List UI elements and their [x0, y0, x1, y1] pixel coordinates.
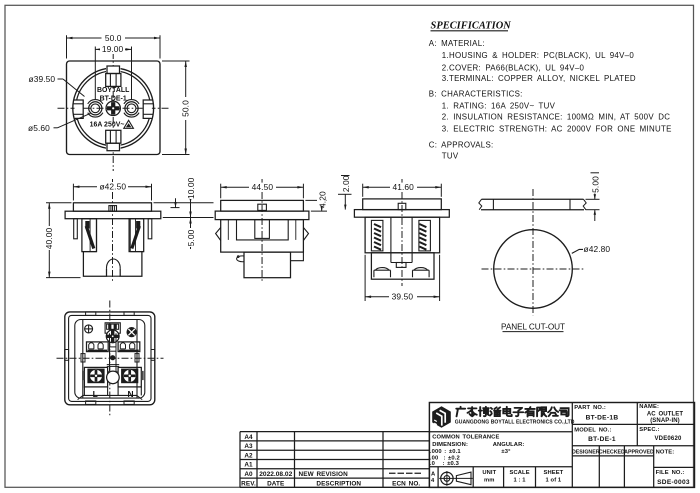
svg-text:ANGULAR:: ANGULAR: — [493, 442, 525, 448]
svg-text:A2: A2 — [244, 452, 253, 459]
svg-text:A0: A0 — [244, 471, 253, 478]
svg-text:DESIGNER: DESIGNER — [572, 450, 600, 456]
svg-text:TUV: TUV — [442, 152, 459, 161]
svg-text:CHECKED: CHECKED — [599, 450, 625, 456]
svg-text:DATE: DATE — [267, 480, 285, 487]
svg-text:N: N — [128, 389, 134, 399]
svg-text:A: MATERIAL:: A: MATERIAL: — [429, 39, 485, 48]
svg-text:NAME:: NAME: — [639, 404, 659, 410]
svg-text:BT-DE-1B: BT-DE-1B — [586, 414, 619, 421]
svg-text:PANEL CUT-OUT: PANEL CUT-OUT — [501, 323, 565, 332]
svg-text:4.20: 4.20 — [317, 191, 327, 208]
svg-text:VDE0620: VDE0620 — [654, 436, 682, 442]
svg-text:mm: mm — [484, 477, 495, 483]
svg-text:BOYTALL: BOYTALL — [97, 87, 129, 94]
svg-text:C: APPROVALS:: C: APPROVALS: — [429, 141, 494, 150]
svg-text:5.00: 5.00 — [186, 229, 196, 246]
svg-text:40.00: 40.00 — [44, 228, 54, 250]
svg-text:APPROVED: APPROVED — [624, 450, 654, 456]
svg-text:A1: A1 — [244, 462, 253, 469]
svg-text:16A 250V~: 16A 250V~ — [90, 121, 125, 128]
svg-text:2022.08.02: 2022.08.02 — [259, 471, 292, 478]
svg-text:REV.: REV. — [241, 480, 256, 487]
svg-text:GUANGDONG BOYTALL ELECTRONICS: GUANGDONG BOYTALL ELECTRONICS CO.,LTD — [455, 419, 575, 425]
svg-text:SPECIFICATION: SPECIFICATION — [431, 21, 512, 32]
svg-text:±3°: ±3° — [501, 449, 511, 455]
svg-text:BT-DE-1: BT-DE-1 — [100, 95, 127, 102]
svg-text:1 : 1: 1 : 1 — [514, 477, 527, 483]
svg-text:3.TERMINAL: COPPER ALLOY, N: 3.TERMINAL: COPPER ALLOY, NICKEL PLATED — [442, 74, 636, 83]
svg-text:50.0: 50.0 — [105, 33, 122, 43]
svg-text:2.00: 2.00 — [341, 175, 351, 192]
svg-text:AC OUTLET: AC OUTLET — [647, 412, 684, 418]
svg-text:SDE-0003: SDE-0003 — [657, 479, 690, 486]
svg-text:A3: A3 — [244, 443, 253, 450]
svg-text:A4: A4 — [244, 434, 253, 441]
svg-text:MODEL NO.:: MODEL NO.: — [574, 428, 611, 434]
svg-text:DESCRIPTION: DESCRIPTION — [316, 480, 361, 487]
svg-text:41.60: 41.60 — [392, 182, 414, 192]
svg-text:10.00: 10.00 — [186, 177, 196, 199]
svg-text:ECN NO.: ECN NO. — [392, 480, 420, 487]
svg-text:2. INSULATION RESISTANCE: 1: 2. INSULATION RESISTANCE: 100MΩ MIN, AT … — [442, 113, 670, 122]
svg-text:1 of 1: 1 of 1 — [546, 477, 562, 483]
svg-text:5.00: 5.00 — [591, 176, 601, 193]
svg-text:ø42.80: ø42.80 — [584, 244, 611, 254]
svg-text:1.HOUSING & HOLDER: PC(BLAC: 1.HOUSING & HOLDER: PC(BLACK), UL 94V–0 — [442, 51, 635, 60]
svg-text:.000 : ±0.1: .000 : ±0.1 — [430, 449, 461, 455]
svg-text:ø39.50: ø39.50 — [29, 74, 56, 84]
svg-text:SCALE: SCALE — [510, 470, 530, 476]
svg-text:.0 : ±0.3: .0 : ±0.3 — [430, 461, 460, 467]
svg-text:L: L — [93, 389, 98, 399]
svg-text:39.50: 39.50 — [392, 292, 414, 302]
svg-text:2.COVER: PA66(BLACK), UL 94: 2.COVER: PA66(BLACK), UL 94V–0 — [442, 63, 585, 72]
svg-text:B: CHARACTERISTICS:: B: CHARACTERISTICS: — [429, 89, 523, 98]
svg-text:PART NO.:: PART NO.: — [574, 405, 606, 411]
svg-text:44.50: 44.50 — [252, 182, 274, 192]
svg-text:19.00: 19.00 — [102, 44, 124, 54]
svg-text:FILE NO.:: FILE NO.: — [656, 470, 685, 476]
svg-text:SHEET: SHEET — [543, 470, 563, 476]
svg-text:NEW REVISION: NEW REVISION — [299, 471, 349, 478]
svg-text:50.0: 50.0 — [181, 100, 191, 117]
svg-text:COMMON TOLERANCE: COMMON TOLERANCE — [432, 434, 499, 440]
svg-text:1. RATING: 16A 250V~ TUV: 1. RATING: 16A 250V~ TUV — [442, 101, 556, 110]
svg-text:A: A — [431, 471, 436, 477]
svg-text:(SNAP-IN): (SNAP-IN) — [650, 418, 680, 424]
svg-text:BT-DE-1: BT-DE-1 — [588, 436, 616, 443]
svg-text:SPEC.:: SPEC.: — [639, 427, 659, 433]
svg-text:ø42.50: ø42.50 — [99, 182, 126, 192]
svg-text:UNIT: UNIT — [482, 470, 496, 476]
svg-text:DIMENSION:: DIMENSION: — [432, 442, 468, 448]
svg-text:ø5.60: ø5.60 — [28, 123, 50, 133]
svg-text:3. ELECTRIC STRENGTH: AC 2: 3. ELECTRIC STRENGTH: AC 2000V FOR ONE M… — [442, 125, 672, 134]
svg-text:NOTE:: NOTE: — [656, 450, 675, 456]
